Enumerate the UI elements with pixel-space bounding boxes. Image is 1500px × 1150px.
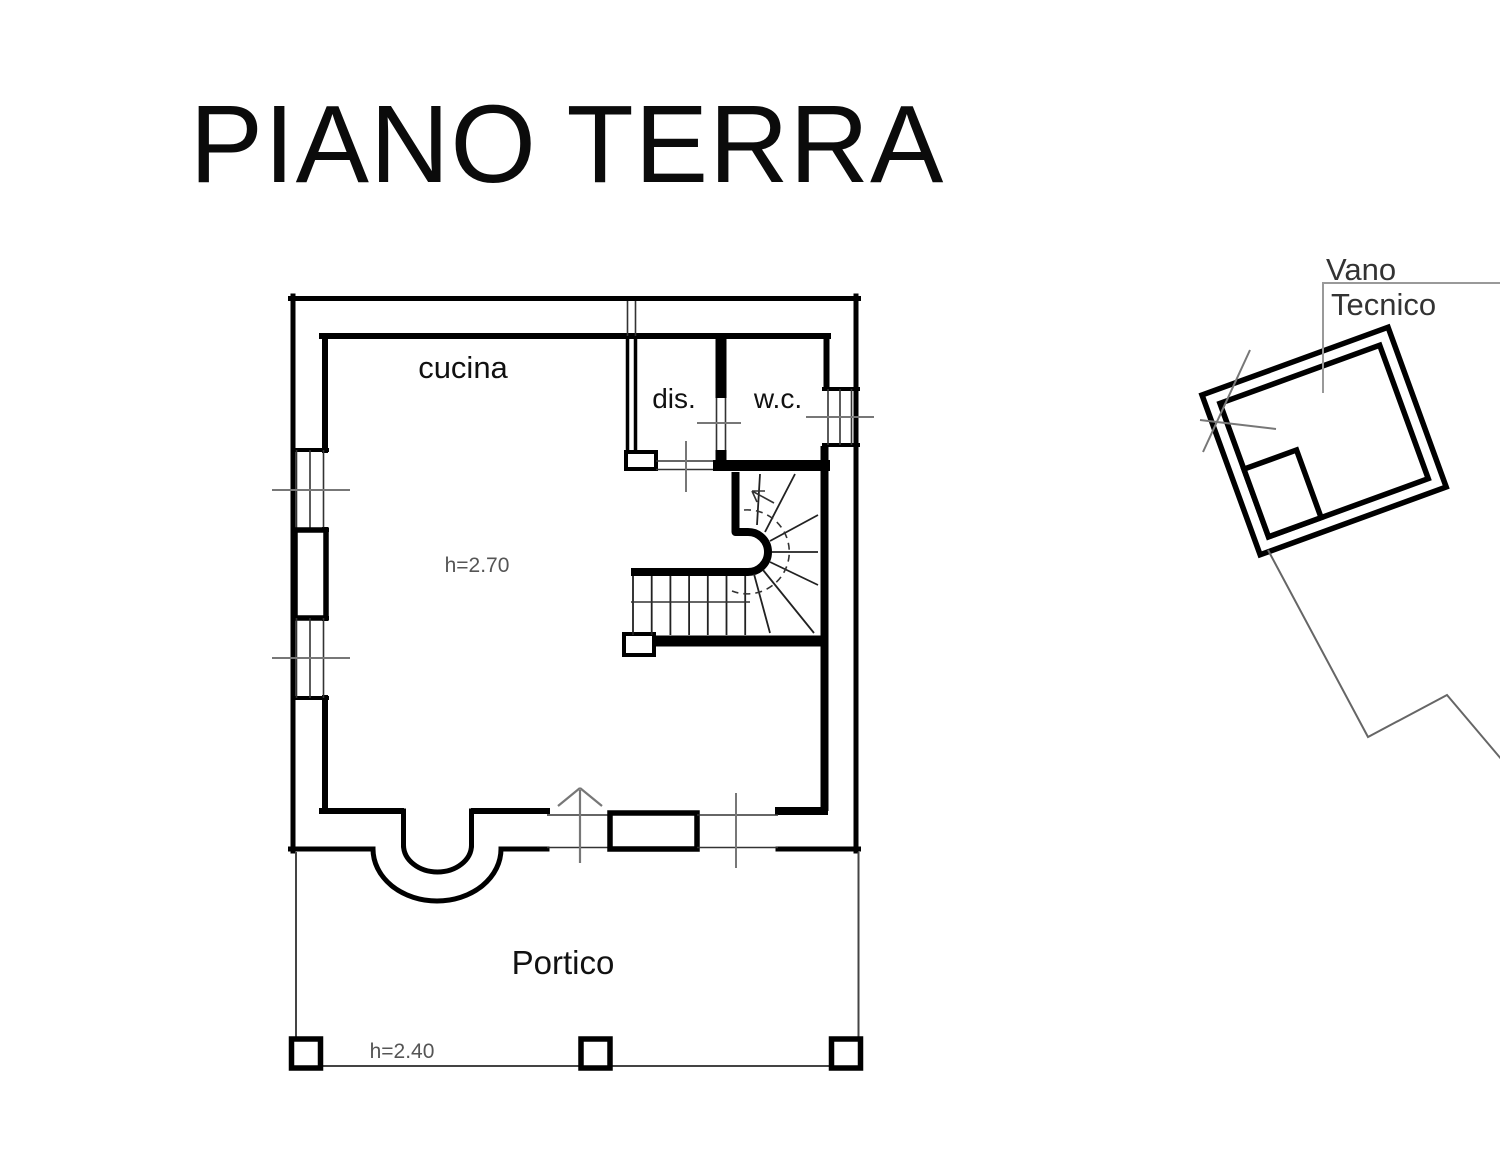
arched-opening-outer-arc bbox=[373, 849, 501, 901]
arched-opening-inner bbox=[404, 811, 472, 872]
room-label-kitchen: cucina bbox=[418, 350, 508, 385]
porch-pillar-left bbox=[292, 1039, 321, 1068]
outbuilding-walls bbox=[1202, 327, 1446, 554]
porch-pillar-middle bbox=[581, 1039, 610, 1068]
door-threshold bbox=[697, 815, 778, 848]
stair-handrail bbox=[631, 472, 768, 572]
main-building: cucina dis. w.c. h=2.70 Portico h=2.40 bbox=[272, 296, 874, 1068]
window-symbol-wc bbox=[806, 389, 874, 445]
outbuilding-vano-tecnico: Vano Tecnico bbox=[1200, 252, 1500, 760]
stair-treads bbox=[633, 576, 745, 635]
wall-break-ticks bbox=[628, 301, 636, 336]
floor-plan-sheet: PIANO TERRA bbox=[0, 0, 1500, 1150]
stair-direction-arrow-icon bbox=[752, 491, 774, 503]
hallway-door-threshold bbox=[656, 461, 713, 470]
wall-pier-left bbox=[295, 530, 326, 618]
site-boundary-line bbox=[1268, 550, 1500, 760]
room-label-hallway: dis. bbox=[652, 383, 696, 414]
interior-right-wall bbox=[775, 446, 828, 811]
partition-kitchen-hallway bbox=[628, 336, 636, 452]
floor-plan-drawing: PIANO TERRA bbox=[0, 0, 1500, 1150]
height-annotation-porch: h=2.40 bbox=[370, 1040, 435, 1063]
window-symbol-left-upper bbox=[272, 450, 350, 530]
window-symbol-left-lower bbox=[272, 618, 350, 698]
room-label-wc: w.c. bbox=[753, 383, 802, 414]
entrance-threshold bbox=[547, 815, 610, 848]
height-annotation-interior: h=2.70 bbox=[445, 554, 510, 577]
entrance-arrow-icon bbox=[558, 788, 602, 863]
partition-foot-pier bbox=[626, 452, 656, 469]
exterior-wall-outer bbox=[291, 296, 859, 851]
outbuilding-label-line2: Tecnico bbox=[1331, 287, 1436, 322]
porch-pillar-right bbox=[832, 1039, 861, 1068]
outbuilding-label-line1: Vano bbox=[1326, 252, 1396, 287]
wall-pier-bottom bbox=[610, 813, 697, 849]
room-label-porch: Portico bbox=[512, 944, 615, 981]
winder-staircase bbox=[631, 472, 818, 635]
plan-title: PIANO TERRA bbox=[190, 83, 945, 206]
stair-wall-pier bbox=[624, 634, 654, 655]
